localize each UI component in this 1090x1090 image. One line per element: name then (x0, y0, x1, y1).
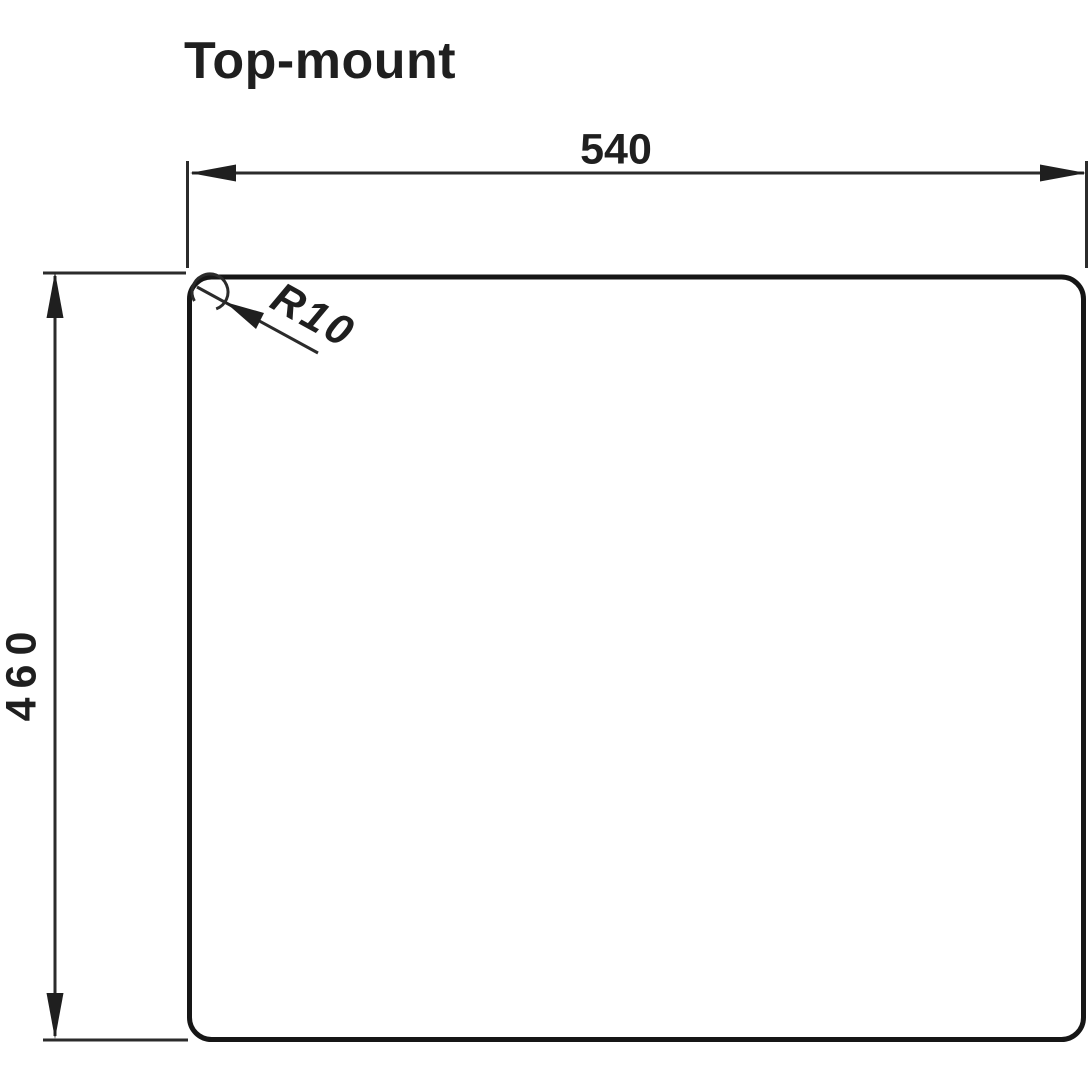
radius-leader-arrow (225, 302, 264, 329)
width-dimension-arrow-left (190, 165, 236, 182)
height-dimension-arrow-bottom (47, 993, 64, 1039)
height-dimension-label: 460 (1, 623, 44, 722)
width-dimension-label: 540 (580, 129, 652, 172)
width-dimension-arrow-right (1040, 165, 1086, 182)
dimension-drawing (0, 0, 1090, 1090)
cutout-outline (190, 277, 1084, 1040)
height-dimension-arrow-top (47, 272, 64, 318)
technical-drawing-canvas: Top-mount 540 460 R10 (0, 0, 1090, 1090)
diagram-title: Top-mount (184, 35, 456, 87)
